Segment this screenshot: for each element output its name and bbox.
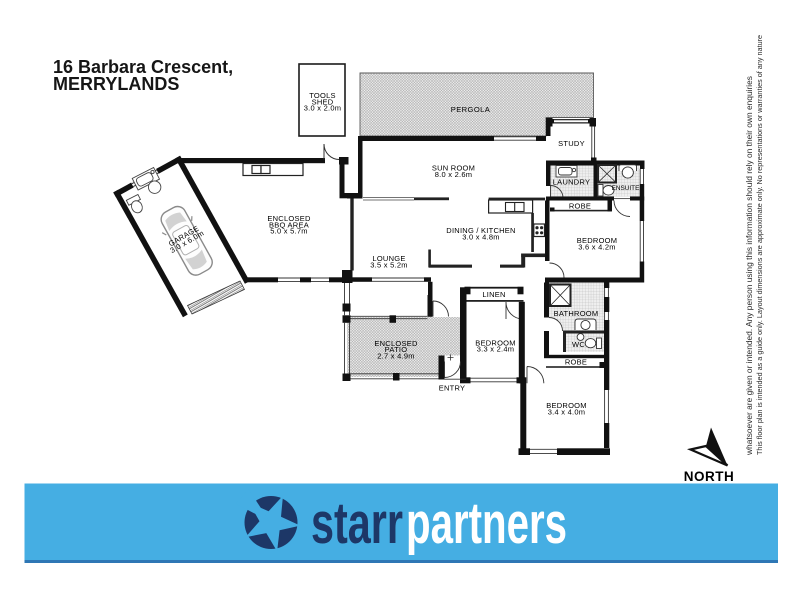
svg-text:2.7 x 4.9m: 2.7 x 4.9m	[377, 352, 415, 361]
svg-text:WC: WC	[572, 340, 585, 349]
svg-text:8.0 x 2.6m: 8.0 x 2.6m	[435, 170, 473, 179]
svg-text:ENTRY: ENTRY	[439, 384, 466, 393]
svg-text:ROBE: ROBE	[569, 201, 591, 210]
svg-text:PERGOLA: PERGOLA	[451, 105, 491, 114]
svg-text:5.0 x 5.7m: 5.0 x 5.7m	[270, 227, 308, 236]
svg-text:BATHROOM: BATHROOM	[554, 309, 599, 318]
svg-text:3.6 x 4.2m: 3.6 x 4.2m	[578, 242, 616, 251]
svg-text:ENSUITE: ENSUITE	[612, 185, 640, 192]
svg-text:ROBE: ROBE	[565, 357, 587, 366]
svg-text:MERRYLANDS: MERRYLANDS	[53, 74, 179, 94]
svg-text:STUDY: STUDY	[558, 139, 585, 148]
svg-text:3.0 x 2.0m: 3.0 x 2.0m	[304, 104, 342, 113]
svg-text:3.3 x 2.4m: 3.3 x 2.4m	[477, 345, 515, 354]
svg-text:This floor plan is intended as: This floor plan is intended as a guide o…	[755, 35, 764, 455]
svg-text:NORTH: NORTH	[684, 469, 735, 484]
svg-text:3.4 x 4.0m: 3.4 x 4.0m	[548, 407, 586, 416]
svg-text:partners: partners	[406, 491, 567, 556]
svg-text:3.0 x 4.8m: 3.0 x 4.8m	[462, 233, 500, 242]
svg-text:3.5 x 5.2m: 3.5 x 5.2m	[370, 260, 408, 269]
svg-text:LAUNDRY: LAUNDRY	[553, 178, 590, 187]
svg-text:LINEN: LINEN	[482, 290, 505, 299]
svg-text:whatsoever are given or intend: whatsoever are given or intended. Any pe…	[744, 76, 754, 456]
svg-text:starr: starr	[311, 491, 403, 556]
